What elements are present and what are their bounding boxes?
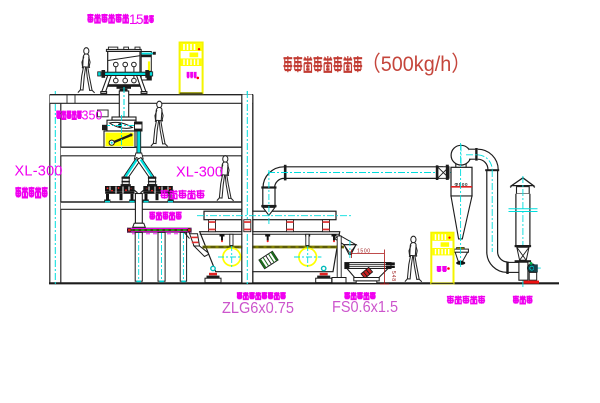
svg-text:（500kg/h）: （500kg/h） [361,52,471,76]
svg-text:Φ500: Φ500 [455,182,468,187]
svg-text:FS0.6x1.5: FS0.6x1.5 [332,299,398,316]
svg-text:ZLG6x0.75: ZLG6x0.75 [222,300,294,317]
svg-text:1.5: 1.5 [129,12,144,27]
svg-text:1500: 1500 [357,249,370,255]
svg-text:XL-300: XL-300 [176,165,223,181]
svg-text:XL-300: XL-300 [15,164,63,180]
svg-text:548: 548 [390,271,396,281]
svg-text:350: 350 [82,109,103,123]
